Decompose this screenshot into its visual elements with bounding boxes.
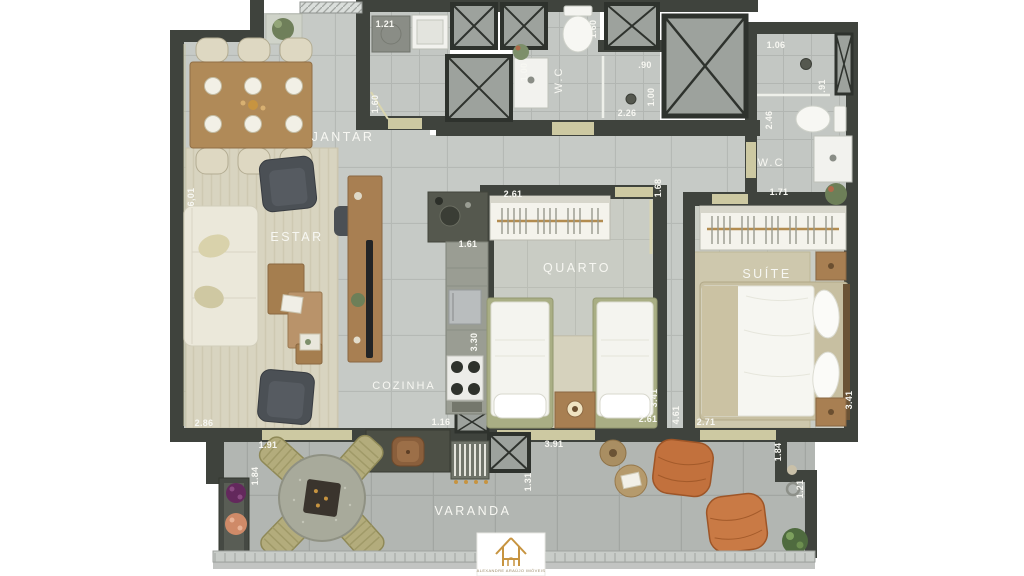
plant-dot [230, 487, 235, 492]
dim-estar-w: 2.86 [195, 418, 214, 428]
floor-plan-canvas: JANTAR ESTAR COZINHA QUARTO SUÍTE W.C W.… [0, 0, 1024, 576]
dining-chair [280, 38, 312, 62]
faucet-icon [830, 155, 837, 162]
pillow [494, 394, 546, 418]
wall-varanda-left-step [206, 437, 224, 484]
plant-flower [516, 46, 521, 51]
toilet-tank [834, 106, 846, 132]
room-label-jantar: JANTAR [312, 130, 375, 144]
ledge-top [300, 2, 362, 13]
elevator-shaft [447, 56, 511, 120]
window-suite [700, 430, 776, 440]
room-label-cozinha: COZINHA [372, 380, 436, 392]
lamp-center [572, 406, 578, 412]
wall-left [170, 30, 184, 437]
dim-shower-len: 2.26 [618, 108, 637, 118]
dim-cozinha-len: 3.30 [469, 333, 479, 352]
dim-quarto-closet: 2.61 [504, 189, 523, 199]
wardrobe [490, 196, 610, 240]
plant-leaf [274, 20, 282, 28]
bed-single-left [487, 298, 553, 428]
dim-laundry-w: 1.21 [376, 19, 395, 29]
door-quarto [615, 187, 653, 197]
wall-top-right [748, 22, 858, 34]
dim-suite-wc-d: 2.46 [764, 111, 774, 130]
door-suite [712, 194, 748, 204]
dim-cozinha-counter: 1.61 [459, 239, 478, 249]
pouf [705, 492, 769, 555]
elevator-shaft-large [664, 16, 746, 116]
laundry-tub-basin [417, 20, 443, 44]
plant-leaf [786, 532, 794, 540]
room-label-wc-top: W.C [553, 67, 565, 94]
dining-chair [196, 148, 228, 174]
shower-drain-icon [626, 94, 636, 104]
hangers [712, 216, 832, 244]
drain-icon [406, 450, 410, 454]
dim-quarto-d: 3.41 [649, 389, 659, 408]
dim-cozinha-w: 1.16 [432, 417, 451, 427]
wall-laundry-left [356, 0, 370, 130]
dim-quarto-w: 2.61 [639, 414, 658, 424]
book [281, 295, 303, 314]
dim-varanda-left-w: 1.91 [259, 440, 278, 450]
duct-shaft-narrow [836, 34, 852, 94]
room-label-varanda: VARANDA [434, 504, 511, 518]
pouf [651, 438, 715, 499]
plant-dot [238, 526, 243, 531]
plant-purple [226, 483, 246, 503]
door-wc-top [552, 122, 594, 135]
room-label-quarto: QUARTO [543, 261, 611, 275]
sofa [184, 206, 258, 346]
wall-core-bottom [436, 120, 760, 136]
dim-varanda-left-d: 1.84 [250, 467, 260, 486]
dim-laundry-d: 1.60 [370, 95, 380, 114]
wall-suite-left [683, 198, 695, 432]
plant-icon [513, 44, 529, 60]
dim-suite-d: 3.41 [844, 391, 854, 410]
dim-wc-top-sink: 1.00 [519, 63, 529, 82]
dim-hall-d: 1.68 [653, 179, 663, 198]
blanket [702, 286, 738, 416]
planter-left [219, 478, 249, 556]
dim-varanda-right-w: 1.21 [795, 480, 805, 499]
dim-shower-d: 1.00 [646, 88, 656, 107]
shower-drain-icon [801, 59, 812, 70]
room-label-suite: SUÍTE [742, 266, 791, 281]
room-label-estar: ESTAR [270, 230, 323, 244]
centerpiece-dot [241, 101, 246, 106]
brand-logo: ALEXANDRE ARAÚJO IMÓVEIS [477, 533, 546, 576]
centerpiece-dot [261, 106, 266, 111]
room-label-wc-suite: W.C [758, 157, 785, 169]
side-table-center [609, 449, 617, 457]
dining-area [190, 14, 312, 174]
kitchen-sink [440, 206, 460, 226]
dim-suite-wc-w: 1.71 [770, 187, 789, 197]
suite-room [700, 206, 850, 426]
deco-vase [354, 337, 361, 344]
brand-name: ALEXANDRE ARAÚJO IMÓVEIS [477, 568, 546, 573]
deco-vase [354, 192, 362, 200]
wall-step-top [250, 0, 264, 40]
nightstand-knob [828, 263, 834, 269]
duct-varanda [489, 434, 529, 471]
dim-corridor-d: 4.61 [671, 406, 681, 425]
toilet-tank [564, 6, 592, 16]
plant-icon [782, 528, 808, 554]
dim-estar-len: 6,01 [186, 188, 196, 207]
nightstand-knob [828, 409, 834, 415]
plant-dot [238, 495, 243, 500]
toilet-icon [796, 106, 830, 132]
dim-suite-shower-d: .91 [817, 79, 827, 92]
plant-flower [828, 186, 834, 192]
elevator-shaft [502, 4, 546, 48]
door-wc-suite [746, 142, 756, 178]
dining-chair [196, 38, 228, 62]
dim-varanda-door: 3.91 [545, 439, 564, 449]
wardrobe [700, 206, 846, 250]
plant-dot [230, 518, 235, 523]
faucet-icon [465, 202, 471, 208]
coffee-machine [435, 197, 443, 205]
wall-top-core [362, 0, 758, 12]
grill [451, 441, 489, 484]
dim-suite-window: 2.71 [697, 417, 716, 427]
duct-kitchen [456, 412, 488, 432]
oven [452, 402, 482, 412]
deco-sphere [787, 465, 797, 475]
bed-single-right [593, 298, 657, 428]
fridge [449, 290, 481, 324]
plant-leaf [797, 542, 804, 549]
dim-suite-shower-w: 1.06 [767, 40, 786, 50]
tv-sideboard [348, 176, 382, 362]
dim-wc-top-depth: 1.60 [588, 20, 598, 39]
dim-varanda-mid-d: 1.31 [523, 473, 533, 492]
armchair [257, 369, 315, 426]
plant-icon [351, 293, 365, 307]
serving-tray [303, 479, 341, 517]
grill-grate [455, 444, 485, 476]
door-laundry [388, 118, 422, 129]
magazine-art [305, 339, 311, 345]
armchair [258, 155, 317, 212]
elevator-shaft [606, 4, 658, 48]
plant-icon [825, 183, 847, 205]
tv [366, 240, 373, 358]
plant-flower [225, 513, 247, 535]
dim-shower-w: .90 [638, 60, 651, 70]
dining-chair [238, 38, 270, 62]
floor-plan: JANTAR ESTAR COZINHA QUARTO SUÍTE W.C W.… [0, 0, 1024, 576]
dim-varanda-right-d: 1.84 [773, 443, 783, 462]
centerpiece [248, 100, 258, 110]
elevator-shaft [452, 4, 496, 48]
